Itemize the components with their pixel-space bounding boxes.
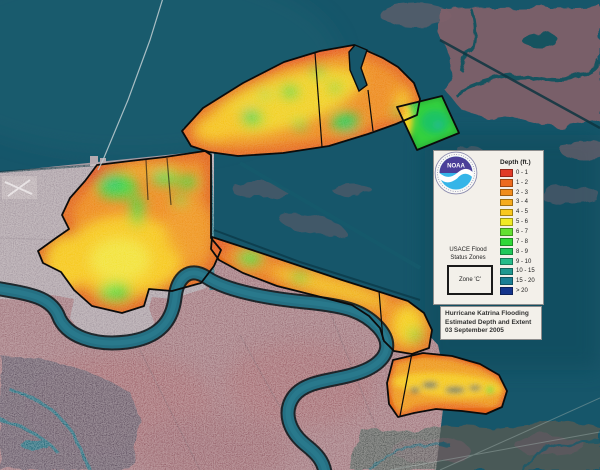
legend-color-swatch — [500, 287, 513, 295]
legend-color-swatch — [500, 228, 513, 236]
map-title-line1: Hurricane Katrina Flooding — [445, 310, 537, 319]
legend-color-swatch — [500, 169, 513, 177]
legend-item: > 20 — [500, 286, 535, 296]
legend-item: 5 - 6 — [500, 217, 535, 227]
usace-line1: USACE Flood — [440, 247, 496, 255]
legend-item-label: 3 - 4 — [516, 199, 528, 205]
legend-item: 4 - 5 — [500, 207, 535, 217]
legend-item: 7 - 8 — [500, 237, 535, 247]
katrina-flood-map: NOAA Depth (ft.) 0 - 11 - 22 - 33 - 44 -… — [0, 0, 600, 470]
legend-item-label: 10 - 15 — [516, 268, 535, 274]
legend-item: 10 - 15 — [500, 266, 535, 276]
usace-line2: Status Zones — [440, 255, 496, 263]
noaa-logo-text: NOAA — [447, 164, 465, 170]
legend-color-swatch — [500, 238, 513, 246]
legend-item: 1 - 2 — [500, 178, 535, 188]
legend-color-swatch — [500, 248, 513, 256]
legend-color-swatch — [500, 277, 513, 285]
legend-depth-rows: 0 - 11 - 22 - 33 - 44 - 55 - 66 - 77 - 8… — [500, 168, 535, 296]
legend-item-label: 4 - 5 — [516, 209, 528, 215]
legend-item-label: 1 - 2 — [516, 180, 528, 186]
legend-title: Depth (ft.) — [500, 159, 531, 166]
legend-item: 9 - 10 — [500, 257, 535, 267]
legend-item-label: 5 - 6 — [516, 219, 528, 225]
map-title-box: Hurricane Katrina Flooding Estimated Dep… — [440, 306, 542, 340]
legend-item: 8 - 9 — [500, 247, 535, 257]
legend-color-swatch — [500, 258, 513, 266]
legend-item: 0 - 1 — [500, 168, 535, 178]
legend-color-swatch — [500, 199, 513, 207]
zone-label: Zone 'C' — [459, 277, 481, 283]
legend-item-label: 7 - 8 — [516, 239, 528, 245]
map-title-line2: Estimated Depth and Extent — [445, 319, 537, 328]
legend-color-swatch — [500, 189, 513, 197]
legend-color-swatch — [500, 179, 513, 187]
legend-panel: NOAA Depth (ft.) 0 - 11 - 22 - 33 - 44 -… — [433, 150, 544, 305]
legend-item-label: 8 - 9 — [516, 249, 528, 255]
noaa-logo: NOAA — [434, 151, 478, 195]
legend-color-swatch — [500, 268, 513, 276]
usace-label: USACE Flood Status Zones — [440, 247, 496, 262]
legend-item: 15 - 20 — [500, 276, 535, 286]
zone-box: Zone 'C' — [447, 265, 493, 295]
legend-color-swatch — [500, 209, 513, 217]
legend-item-label: 6 - 7 — [516, 229, 528, 235]
legend-item: 3 - 4 — [500, 198, 535, 208]
legend-color-swatch — [500, 218, 513, 226]
legend-item: 6 - 7 — [500, 227, 535, 237]
legend-item: 2 - 3 — [500, 188, 535, 198]
map-title-line3: 03 September 2005 — [445, 327, 537, 336]
legend-item-label: 2 - 3 — [516, 190, 528, 196]
legend-item-label: 0 - 1 — [516, 170, 528, 176]
legend-item-label: 9 - 10 — [516, 259, 531, 265]
legend-item-label: > 20 — [516, 288, 528, 294]
legend-item-label: 15 - 20 — [516, 278, 535, 284]
